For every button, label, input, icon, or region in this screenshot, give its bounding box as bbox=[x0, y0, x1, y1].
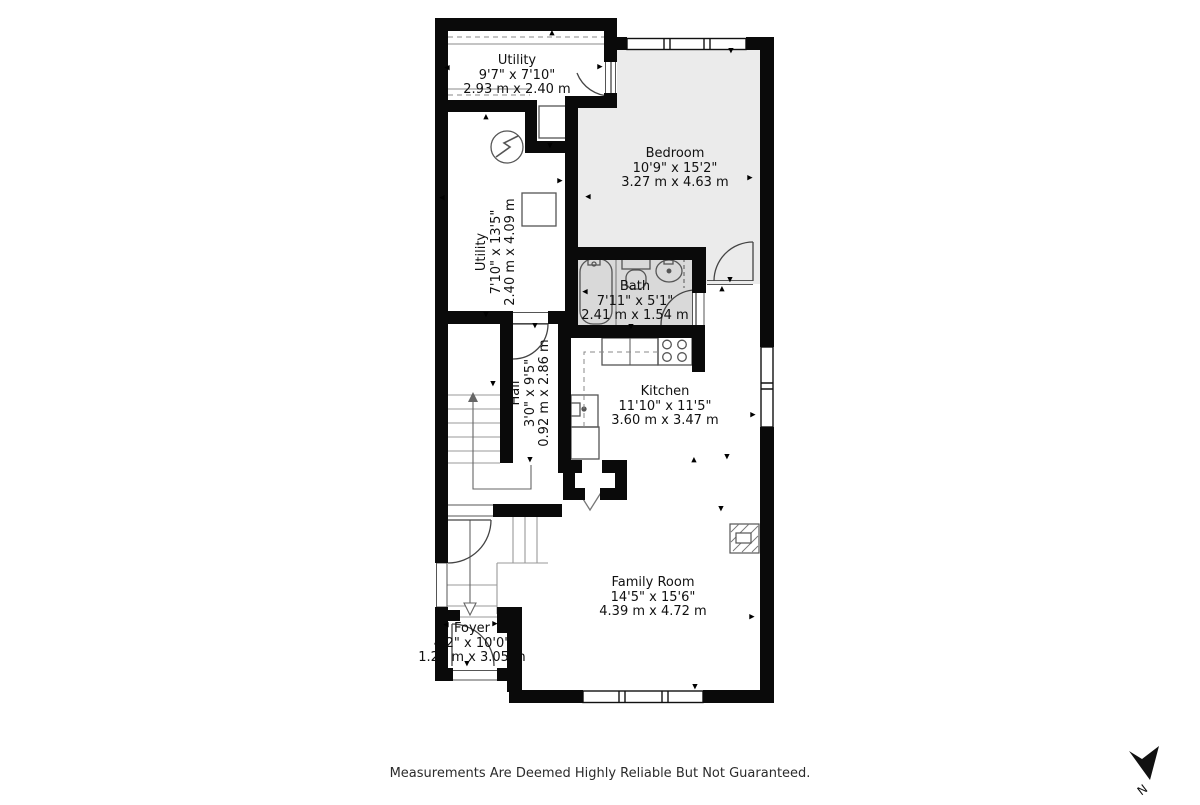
wall bbox=[558, 311, 571, 473]
wall bbox=[509, 690, 583, 703]
floorplan-page: Utility 9'7" x 7'10" 2.93 m x 2.40 m Bed… bbox=[0, 0, 1200, 805]
wall bbox=[497, 607, 522, 633]
dimension-marker-icon: ▼ bbox=[628, 324, 633, 331]
dishwasher-icon bbox=[571, 427, 599, 459]
dimension-marker-icon: ◀ bbox=[585, 194, 590, 201]
dimension-marker-icon: ▶ bbox=[747, 175, 752, 182]
wall bbox=[435, 504, 447, 517]
dimension-marker-icon: ▼ bbox=[527, 457, 532, 464]
dimension-marker-icon: ◀ bbox=[444, 65, 449, 72]
dimension-marker-icon: ▼ bbox=[483, 312, 488, 319]
wall bbox=[692, 247, 706, 293]
dimension-marker-icon: ▲ bbox=[549, 30, 554, 37]
wall bbox=[500, 324, 513, 463]
dimension-marker-icon: ▶ bbox=[492, 621, 497, 628]
room-label-utility-left: Utility 7'10" x 13'5" 2.40 m x 4.09 m bbox=[475, 172, 519, 332]
wall bbox=[604, 50, 617, 62]
wall bbox=[600, 488, 627, 500]
disclaimer-text: Measurements Are Deemed Highly Reliable … bbox=[0, 766, 1200, 781]
appliance-icon bbox=[522, 193, 556, 226]
wall bbox=[435, 311, 513, 324]
dimension-marker-icon: ▲ bbox=[719, 286, 724, 293]
wall bbox=[563, 488, 585, 500]
dimension-marker-icon: ◀ bbox=[443, 622, 448, 629]
wall bbox=[760, 427, 774, 703]
dimension-marker-icon: ◀ bbox=[582, 289, 587, 296]
dimension-marker-icon: ▼ bbox=[490, 381, 495, 388]
room-label-bath: Bath 7'11" x 5'1" 2.41 m x 1.54 m bbox=[555, 280, 715, 324]
dimension-marker-icon: ▼ bbox=[724, 454, 729, 461]
wall bbox=[604, 37, 627, 50]
dimension-marker-icon: ▶ bbox=[597, 64, 602, 71]
room-label-family-room: Family Room 14'5" x 15'6" 4.39 m x 4.72 … bbox=[558, 576, 748, 620]
wall bbox=[703, 690, 774, 703]
stove-icon bbox=[658, 336, 692, 365]
wall bbox=[565, 96, 578, 338]
electrical-panel-icon bbox=[491, 131, 523, 163]
dimension-marker-icon: ◀ bbox=[439, 195, 444, 202]
dimension-marker-icon: ▼ bbox=[718, 506, 723, 513]
wall bbox=[565, 247, 705, 260]
dimension-marker-icon: ▼ bbox=[727, 277, 732, 284]
dimension-marker-icon: ▶ bbox=[557, 178, 562, 185]
wall bbox=[435, 18, 617, 31]
wall bbox=[525, 100, 537, 141]
dimension-marker-icon: ▼ bbox=[547, 143, 552, 150]
wall bbox=[493, 504, 562, 517]
dimension-marker-icon: ▼ bbox=[692, 684, 697, 691]
room-label-hall: Hall 3'0" x 9'5" 0.92 m x 2.86 m bbox=[509, 318, 553, 468]
room-label-utility-top: Utility 9'7" x 7'10" 2.93 m x 2.40 m bbox=[437, 54, 597, 98]
dimension-marker-icon: ▼ bbox=[532, 323, 537, 330]
dimension-marker-icon: ▶ bbox=[749, 614, 754, 621]
fireplace-icon bbox=[730, 524, 759, 553]
dimension-marker-icon: ▼ bbox=[464, 661, 469, 668]
wall bbox=[760, 37, 774, 347]
wall bbox=[435, 610, 460, 621]
wall bbox=[435, 668, 453, 681]
room-label-kitchen: Kitchen 11'10" x 11'5" 3.60 m x 3.47 m bbox=[575, 385, 755, 429]
room-label-bedroom: Bedroom 10'9" x 15'2" 3.27 m x 4.63 m bbox=[585, 147, 765, 191]
wall bbox=[435, 100, 530, 112]
dimension-marker-icon: ▼ bbox=[728, 48, 733, 55]
dimension-marker-icon: ▲ bbox=[691, 457, 696, 464]
dimension-marker-icon: ▶ bbox=[750, 412, 755, 419]
wall bbox=[692, 338, 705, 372]
dimension-marker-icon: ▲ bbox=[483, 114, 488, 121]
wall bbox=[565, 325, 705, 338]
